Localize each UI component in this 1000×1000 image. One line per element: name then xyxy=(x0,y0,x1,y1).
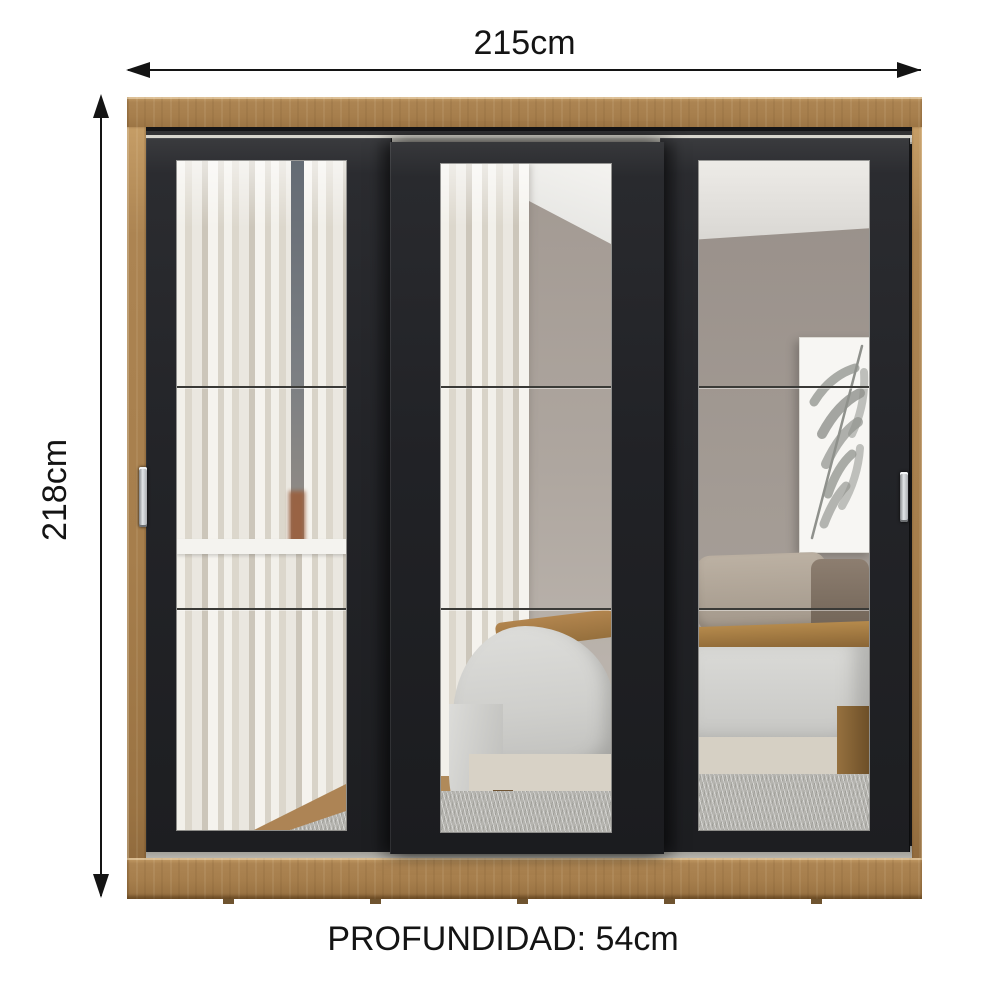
arrow-left-icon xyxy=(126,62,150,78)
mirror-panel-seam xyxy=(699,608,869,610)
mirror-left xyxy=(176,160,347,831)
wardrobe-foot xyxy=(664,899,675,904)
reflection-palm-leaf-artwork xyxy=(799,337,870,553)
product-dimension-diagram: 215cm 218cm xyxy=(0,0,1000,1000)
wardrobe-foot xyxy=(223,899,234,904)
door-handle-left xyxy=(139,467,147,527)
sliding-door-middle xyxy=(390,142,664,854)
mirror-middle xyxy=(440,163,612,833)
sliding-door-right xyxy=(660,138,910,852)
mirror-panel-seam xyxy=(441,386,611,388)
sliding-door-left xyxy=(146,138,392,852)
door-handle-right xyxy=(900,472,908,522)
height-dimension-label: 218cm xyxy=(38,410,72,570)
mirror-panel-seam xyxy=(177,608,346,610)
reflection-carpet xyxy=(699,774,869,830)
wardrobe xyxy=(127,97,922,899)
reflection-pillow xyxy=(698,552,828,632)
wardrobe-base-panel xyxy=(127,858,922,899)
reflection-carpet xyxy=(441,791,611,833)
height-dimension-line xyxy=(100,97,102,896)
reflection-window-sill xyxy=(177,539,346,554)
mirror-panel-seam xyxy=(177,386,346,388)
arrow-up-icon xyxy=(93,94,109,118)
wardrobe-foot xyxy=(811,899,822,904)
arrow-down-icon xyxy=(93,874,109,898)
arrow-right-icon xyxy=(897,62,921,78)
mirror-panel-seam xyxy=(699,386,869,388)
wardrobe-foot xyxy=(517,899,528,904)
reflection-bed-base xyxy=(699,737,851,777)
reflection-curtains xyxy=(177,161,346,830)
depth-dimension-label: PROFUNDIDAD: 54cm xyxy=(0,920,1000,959)
reflection-ceiling xyxy=(699,161,869,241)
mirror-panel-seam xyxy=(441,608,611,610)
width-dimension-line xyxy=(128,69,921,71)
width-dimension-label: 215cm xyxy=(128,24,921,63)
wardrobe-foot xyxy=(370,899,381,904)
mirror-right xyxy=(698,160,870,831)
